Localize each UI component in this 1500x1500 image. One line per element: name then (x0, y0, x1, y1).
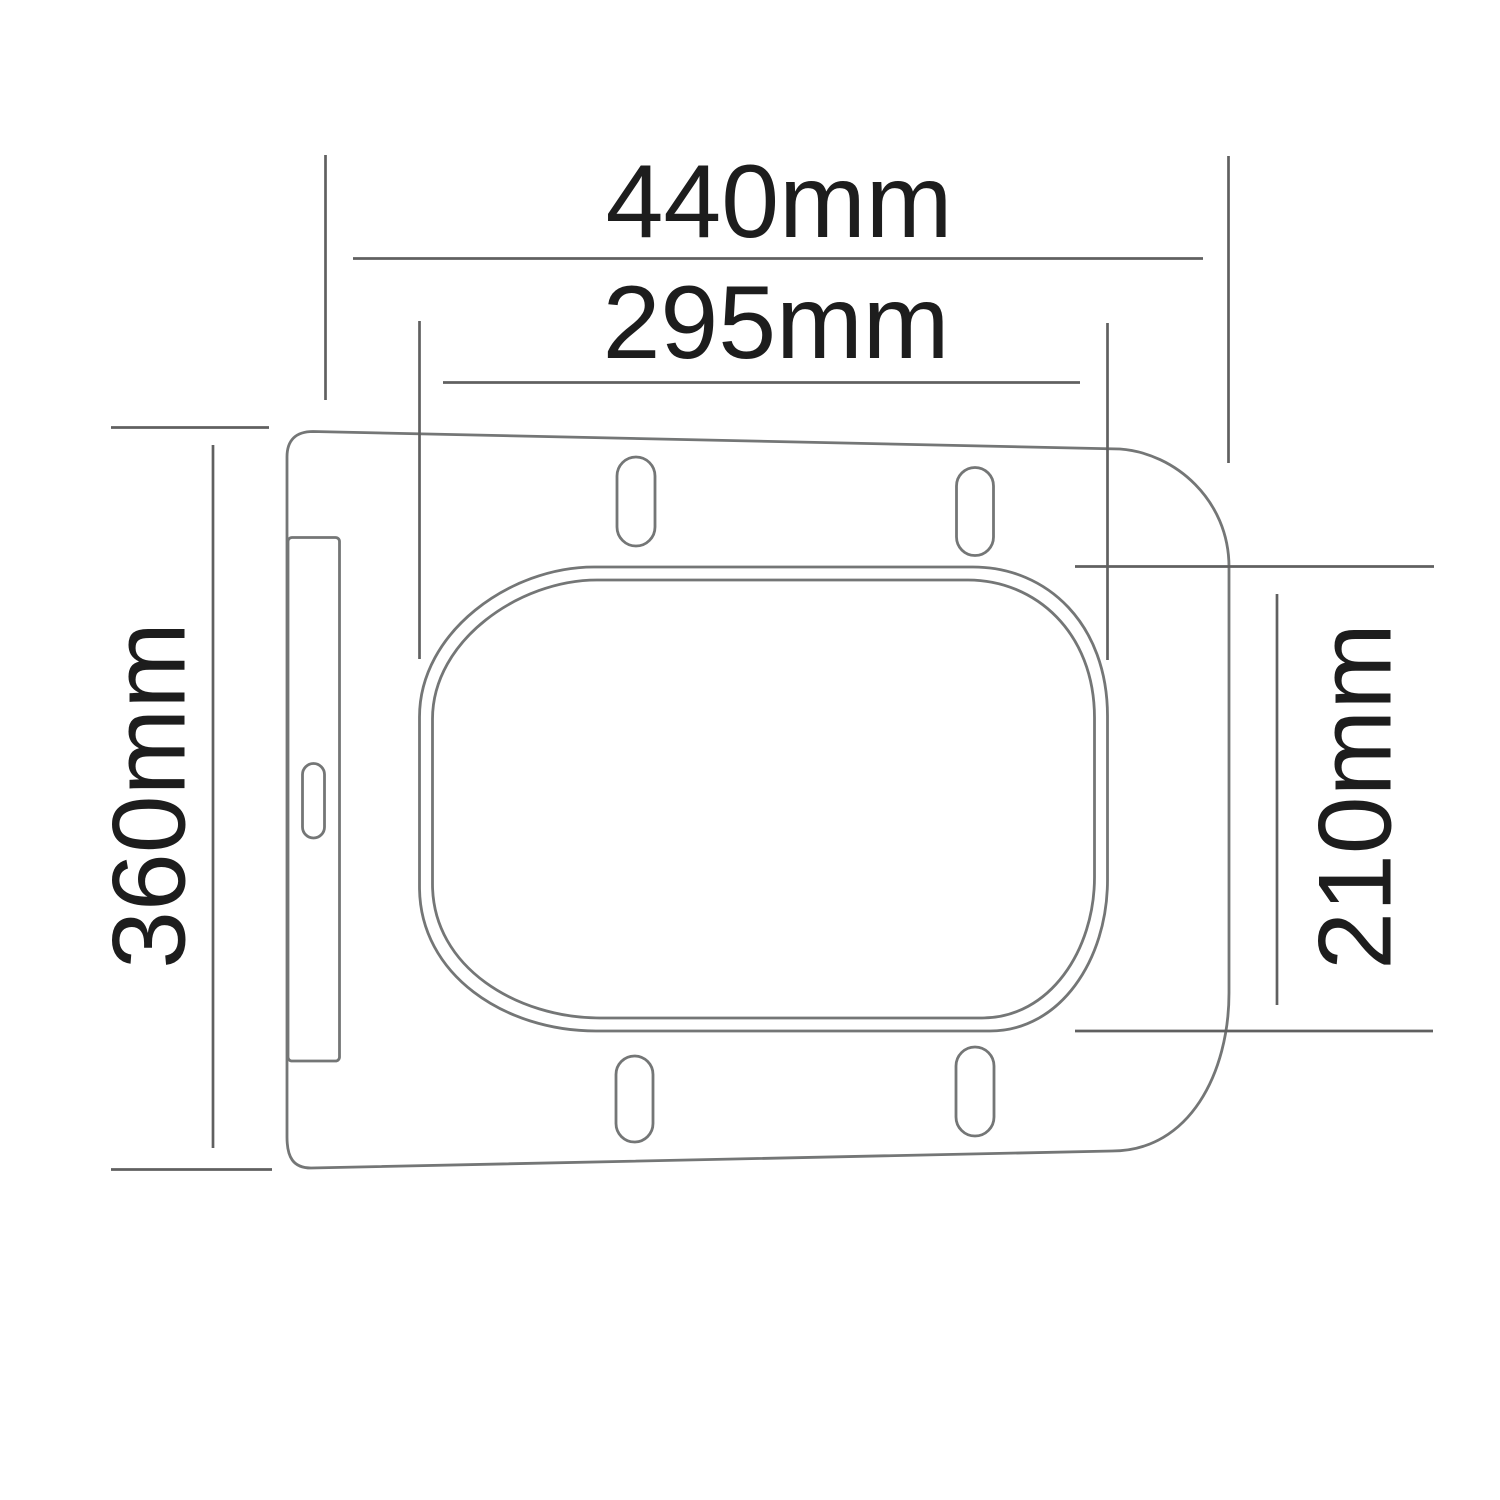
svg-text:295mm: 295mm (603, 265, 950, 381)
svg-text:210mm: 210mm (1298, 623, 1414, 970)
svg-text:440mm: 440mm (606, 144, 953, 260)
svg-text:360mm: 360mm (92, 622, 208, 969)
